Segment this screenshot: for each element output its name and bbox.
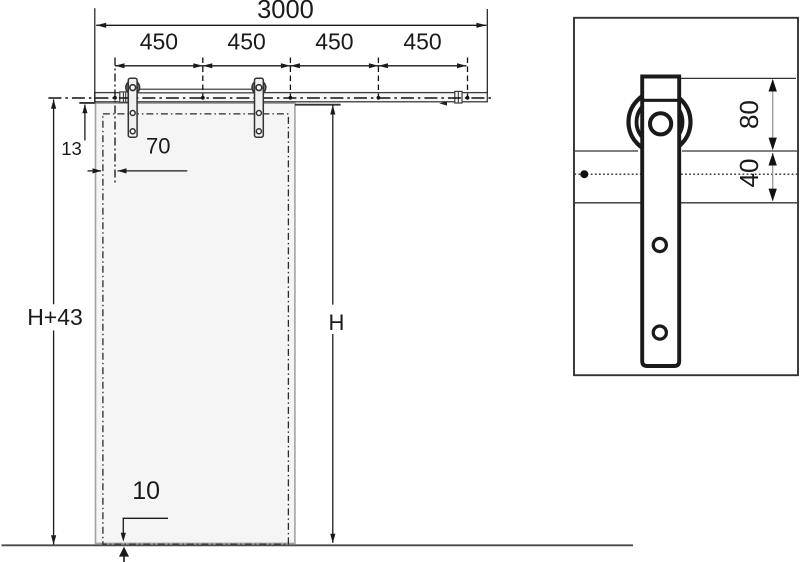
svg-text:40: 40 (734, 159, 764, 188)
svg-text:H: H (329, 310, 345, 335)
svg-text:80: 80 (734, 100, 764, 129)
svg-text:450: 450 (315, 28, 353, 54)
svg-text:H+43: H+43 (27, 304, 83, 330)
svg-text:450: 450 (403, 28, 441, 54)
svg-text:13: 13 (61, 138, 82, 159)
svg-text:70: 70 (146, 134, 170, 159)
svg-text:450: 450 (227, 28, 265, 54)
svg-text:10: 10 (132, 477, 160, 505)
svg-text:3000: 3000 (257, 0, 314, 24)
svg-text:450: 450 (140, 28, 178, 54)
